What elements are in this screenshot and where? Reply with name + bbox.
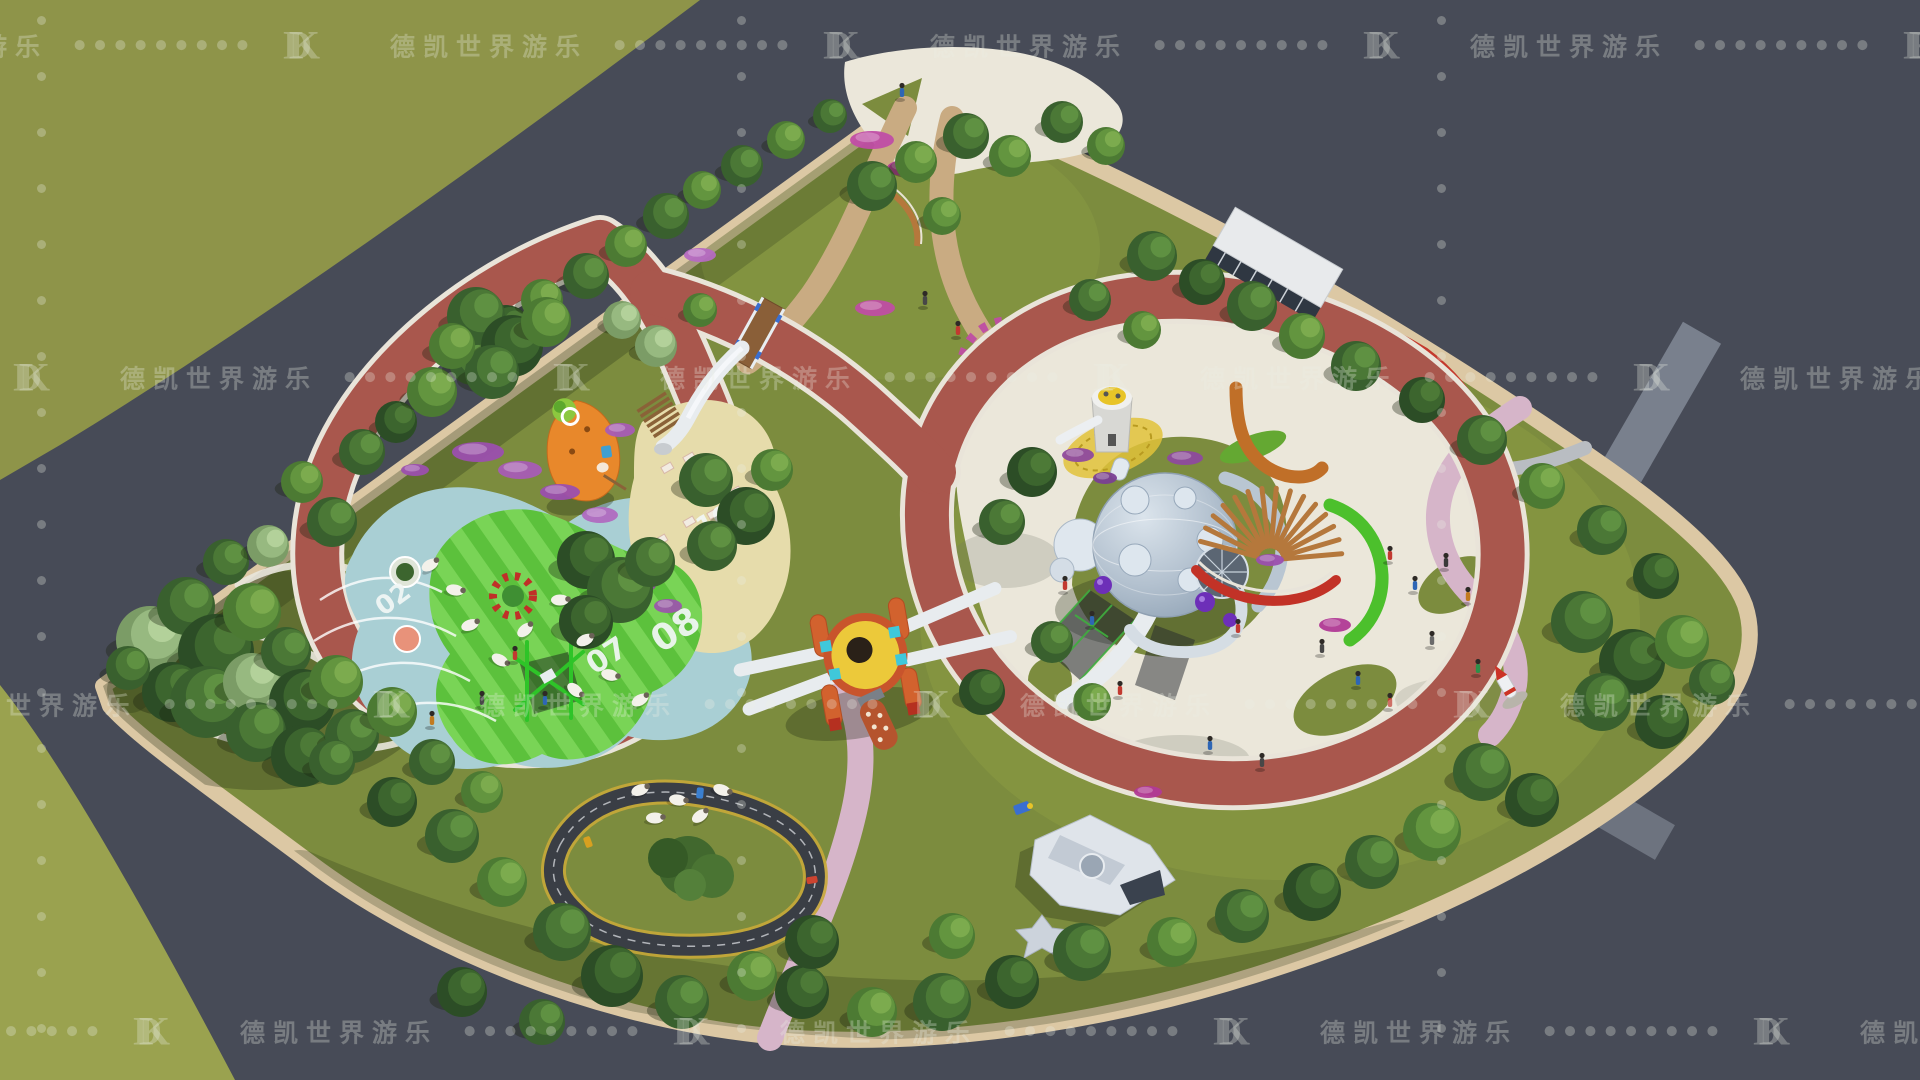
flower-bush [582,507,618,523]
flower-bush [1167,451,1203,465]
flower-bush [855,300,895,316]
slide-exit [654,443,672,455]
karting-track [553,792,815,946]
salmon-circle [394,626,420,652]
flower-bush [1256,554,1284,566]
playground-park-aerial-view: 02 07 08 10 [0,0,1920,1080]
park-render-canvas: 02 07 08 10 [0,0,1920,1080]
flower-bush [1134,786,1162,798]
kart [696,787,704,799]
flower-bush [1319,618,1351,632]
flower-bush [654,599,682,613]
flower-bush [850,131,894,149]
flower-bush [452,442,504,462]
flower-bush [605,423,635,437]
flower-bush [684,248,716,262]
flower-bush [401,464,429,476]
flower-bush [540,484,580,500]
flower-bush [1062,448,1094,462]
flower-bush [498,461,542,479]
flower-bush [1093,472,1117,484]
